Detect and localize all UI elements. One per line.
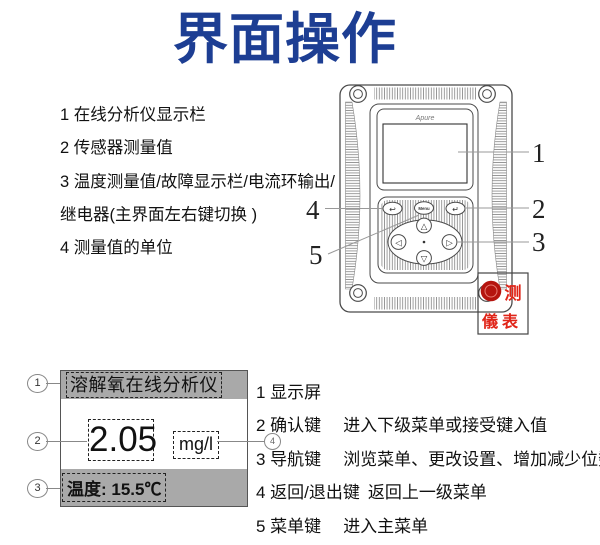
callout-5: 5 (309, 240, 323, 270)
menu-key-label: Menu (418, 206, 430, 211)
measurement-value: 2.05 (88, 419, 154, 461)
key-row: 1 显示屏 (256, 376, 600, 409)
feature-item: 3 温度测量值/故障显示栏/电流环输出/继电器(主界面左右键切换 ) (60, 166, 336, 233)
feature-item: 1 在线分析仪显示栏 (60, 99, 336, 132)
callout-4: 4 (306, 195, 320, 225)
key-label: 5 菜单键 (256, 517, 321, 536)
key-row: 4 返回/退出键返回上一级菜单 (256, 476, 600, 509)
nav-up-button: △ (417, 218, 432, 233)
callout-line (46, 488, 60, 489)
callout-2: 2 (532, 194, 546, 224)
key-desc: 进入主菜单 (343, 517, 428, 536)
nav-right-button: ▷ (442, 235, 457, 250)
measurement-unit: mg/l (173, 431, 219, 459)
callout-line (46, 383, 60, 384)
nav-up-icon: △ (421, 221, 428, 231)
nav-left-icon: ◁ (395, 238, 402, 248)
mock-callout-3: 3 (27, 479, 48, 498)
screen-mockup: 溶解氧在线分析仪 2.05 mg/l 温度: 15.5℃ (60, 370, 248, 507)
feature-list: 1 在线分析仪显示栏 2 传感器测量值 3 温度测量值/故障显示栏/电流环输出/… (60, 99, 336, 265)
back-button: ↩ (383, 202, 402, 215)
key-row: 2 确认键进入下级菜单或接受键入值 (256, 409, 600, 442)
mock-temperature-bar: 温度: 15.5℃ (61, 469, 247, 506)
mock-header-label: 溶解氧在线分析仪 (66, 372, 222, 398)
menu-button: Menu (415, 202, 434, 215)
key-desc: 返回上一级菜单 (368, 483, 487, 502)
back-icon: ↩ (389, 205, 396, 214)
key-label: 1 显示屏 (256, 383, 321, 402)
mock-callout-2: 2 (27, 432, 48, 451)
manual-page: 界面操作 1 在线分析仪显示栏 2 传感器测量值 3 温度测量值/故障显示栏/电… (0, 0, 600, 545)
key-desc: 浏览菜单、更改设置、增加减少位数 (343, 450, 600, 469)
enter-icon: ↵ (452, 205, 459, 214)
callout-line (46, 441, 87, 442)
controller-body: Apure ↩ Menu ↵ △ ▽ (340, 85, 512, 312)
key-label: 3 导航键 (256, 450, 321, 469)
key-desc: 进入下级菜单或接受键入值 (343, 416, 547, 435)
callout-3: 3 (532, 227, 546, 257)
key-description-list: 1 显示屏 2 确认键进入下级菜单或接受键入值 3 导航键浏览菜单、更改设置、增… (256, 376, 600, 543)
screw-icon (350, 86, 367, 103)
feature-item: 4 测量值的单位 (60, 232, 336, 265)
feature-item: 2 传感器测量值 (60, 132, 336, 165)
key-row: 5 菜单键进入主菜单 (256, 510, 600, 543)
brand-label: Apure (415, 115, 435, 122)
nav-down-button: ▽ (417, 251, 432, 266)
nav-left-button: ◁ (391, 235, 406, 250)
display-screen (383, 124, 467, 183)
screw-icon (350, 285, 367, 302)
watermark-line2: 儀表 (481, 312, 522, 331)
enter-button: ↵ (446, 202, 465, 215)
screw-icon (479, 86, 496, 103)
temperature-label: 温度: 15.5℃ (62, 473, 166, 502)
mock-callout-1: 1 (27, 374, 48, 393)
watermark-line1: 测 (505, 283, 522, 303)
nav-right-icon: ▷ (446, 238, 453, 248)
page-title: 界面操作 (173, 0, 397, 74)
key-row: 3 导航键浏览菜单、更改设置、增加减少位数 (256, 443, 600, 476)
key-label: 2 确认键 (256, 416, 321, 435)
nav-down-icon: ▽ (421, 254, 428, 264)
device-illustration: Apure ↩ Menu ↵ △ ▽ (300, 78, 600, 348)
mock-header-bar: 溶解氧在线分析仪 (61, 371, 247, 399)
key-label: 4 返回/退出键 (256, 483, 360, 502)
callout-1: 1 (532, 138, 546, 168)
seal-icon (481, 281, 502, 302)
